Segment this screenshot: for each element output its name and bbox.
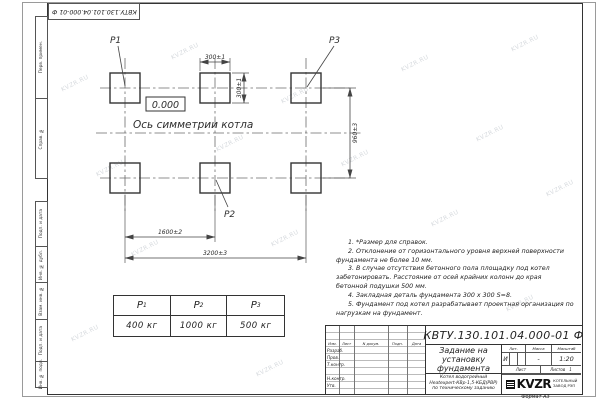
- title-line-2: установку: [426, 355, 501, 364]
- symmetry-axis-label: Ось симметрии котла: [133, 119, 253, 131]
- factory-name: КОТЕЛЬНЫЙ ЗАВОД РЭП: [553, 379, 577, 388]
- row-nkontr: Н.контр.: [327, 375, 346, 382]
- load-p2-value: 1000 кг: [171, 316, 228, 336]
- sheets-value: 1: [569, 367, 572, 372]
- mass-value: -: [526, 353, 552, 366]
- kvzr-logo-icon: [506, 380, 515, 389]
- lit-cell-2: [510, 353, 518, 366]
- dim-total-span: 3200±3: [203, 250, 227, 257]
- col-izm: Изм.: [326, 340, 339, 347]
- p2-subscript: 2: [200, 302, 204, 309]
- load-table-value-row: 400 кг 1000 кг 500 кг: [114, 316, 284, 336]
- mass-header: Масса: [526, 345, 552, 353]
- center-lines: [96, 58, 362, 212]
- factory-line-2: ЗАВОД РЭП: [553, 384, 577, 389]
- load-col-p3-header: Р3: [227, 296, 284, 316]
- drawing-sheet: KVZR.RU KVZR.RU KVZR.RU KVZR.RU KVZR.RU …: [0, 0, 600, 400]
- title-line-3: фундамента: [426, 364, 501, 373]
- sheets-cell: Листов 1: [541, 366, 581, 374]
- kvzr-logo-text: KVZR: [517, 377, 552, 391]
- drawing-title: Задание на установку фундамента: [426, 345, 502, 373]
- note-3: 3. В случае отсутствия бетонного пола пл…: [336, 265, 574, 291]
- sheets-label: Листов: [550, 367, 565, 372]
- title-block-signature-grid: Изм. Лист N докум. Подп. Дата Разраб. Пр…: [326, 326, 426, 394]
- col-ndokum: N докум.: [354, 340, 388, 347]
- sheet-label: Лист: [502, 366, 541, 374]
- label-p3: Р3: [329, 36, 340, 46]
- label-p1: Р1: [110, 36, 121, 46]
- format-label: Формат А3: [488, 394, 583, 400]
- product-line-3: по техническому заданию: [426, 386, 501, 392]
- dim-pad-width: 300±1: [205, 54, 225, 61]
- row-utv: Утв.: [327, 382, 336, 389]
- load-table-header-row: Р1 Р2 Р3: [114, 296, 284, 316]
- lit-cell-3: [518, 353, 526, 366]
- load-p1-value: 400 кг: [114, 316, 171, 336]
- scale-header: Масштаб: [552, 345, 581, 353]
- p1-subscript: 1: [143, 302, 147, 309]
- company-logo-cell: KVZR КОТЕЛЬНЫЙ ЗАВОД РЭП: [502, 374, 581, 393]
- row-tkontr: Т.контр.: [327, 361, 345, 368]
- document-number: КВТУ.130.101.04.000-01 Ф: [426, 326, 581, 345]
- title-line-1: Задание на: [426, 346, 501, 355]
- dim-row-spacing: 960±3: [352, 123, 359, 143]
- row-prov: Пров.: [327, 354, 339, 361]
- lit-value: И: [502, 353, 510, 366]
- col-list: Лист: [339, 340, 354, 347]
- load-p3-value: 500 кг: [227, 316, 284, 336]
- note-4: 4. Закладная деталь фундамента 300 x 300…: [336, 292, 574, 301]
- dim-col-spacing: 1600±2: [158, 229, 182, 236]
- dim-pad-height: 300±1: [236, 78, 243, 98]
- lit-header: Лит.: [502, 345, 526, 353]
- col-podp: Подп.: [388, 340, 407, 347]
- row-razrab: Разраб.: [327, 347, 343, 354]
- note-2: 2. Отклонение от горизонтального уровня …: [336, 248, 574, 266]
- elevation-value: 0.000: [152, 100, 179, 111]
- scale-value: 1:20: [552, 353, 581, 366]
- product-name: Котел водогрейный Heatexpert-КВр-1,5-КБД…: [426, 373, 502, 394]
- technical-notes: 1. *Размер для справок. 2. Отклонение от…: [336, 239, 574, 318]
- note-1: 1. *Размер для справок.: [336, 239, 574, 248]
- title-block: Изм. Лист N докум. Подп. Дата Разраб. Пр…: [325, 325, 583, 395]
- load-col-p2-header: Р2: [171, 296, 228, 316]
- note-5: 5. Фундамент под котел разрабатывает про…: [336, 301, 574, 319]
- p3-subscript: 3: [257, 302, 261, 309]
- load-table: Р1 Р2 Р3 400 кг 1000 кг 500 кг: [113, 295, 285, 337]
- load-col-p1-header: Р1: [114, 296, 171, 316]
- label-p2: Р2: [224, 210, 235, 220]
